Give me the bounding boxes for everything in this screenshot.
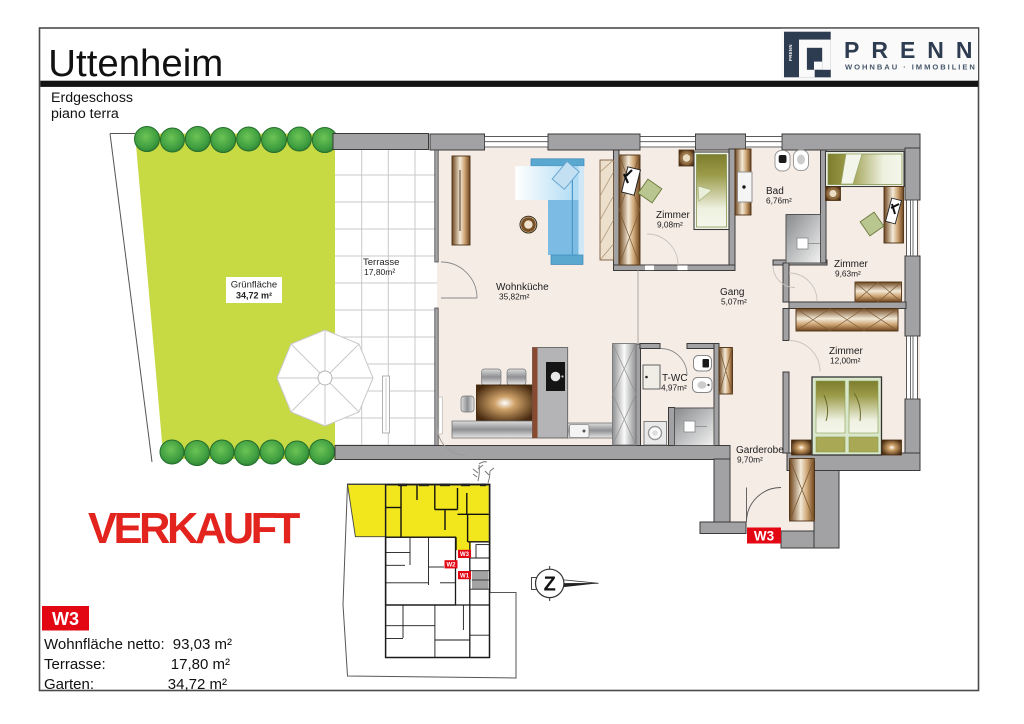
svg-text:W3: W3: [754, 529, 775, 544]
svg-text:W2: W2: [447, 563, 457, 569]
svg-text:34,72 m²: 34,72 m²: [168, 676, 227, 693]
svg-text:9,70m²: 9,70m²: [737, 455, 763, 465]
svg-text:12,00m²: 12,00m²: [830, 356, 861, 366]
svg-text:PRENN: PRENN: [788, 44, 793, 61]
svg-text:Garten:: Garten:: [44, 676, 94, 693]
svg-text:34,72 m²: 34,72 m²: [236, 291, 272, 301]
svg-text:W3: W3: [52, 609, 79, 629]
svg-text:VERKAUFT: VERKAUFT: [88, 505, 301, 553]
svg-text:WOHNBAU · IMMOBILIEN: WOHNBAU · IMMOBILIEN: [845, 63, 977, 72]
svg-text:35,82m²: 35,82m²: [499, 292, 530, 302]
svg-text:17,80m²: 17,80m²: [364, 267, 395, 277]
svg-text:Z: Z: [544, 574, 556, 596]
svg-text:17,80 m²: 17,80 m²: [171, 656, 230, 673]
svg-text:Uttenheim: Uttenheim: [48, 42, 223, 85]
svg-text:Erdgeschoss: Erdgeschoss: [51, 90, 133, 106]
svg-text:Terrasse:: Terrasse:: [44, 656, 106, 673]
svg-text:Grünfläche: Grünfläche: [231, 280, 277, 291]
svg-text:9,63m²: 9,63m²: [835, 269, 861, 279]
svg-text:5,07m²: 5,07m²: [721, 297, 747, 307]
svg-text:W3: W3: [460, 552, 470, 558]
svg-text:4,97m²: 4,97m²: [661, 383, 687, 393]
svg-text:93,03 m²: 93,03 m²: [173, 636, 232, 653]
svg-text:W1: W1: [460, 573, 470, 579]
svg-text:6,76m²: 6,76m²: [766, 196, 792, 206]
svg-text:piano terra: piano terra: [51, 106, 119, 122]
svg-text:9,08m²: 9,08m²: [657, 220, 683, 230]
svg-text:PRENN: PRENN: [844, 37, 985, 63]
svg-text:Wohnfläche netto:: Wohnfläche netto:: [44, 636, 165, 653]
